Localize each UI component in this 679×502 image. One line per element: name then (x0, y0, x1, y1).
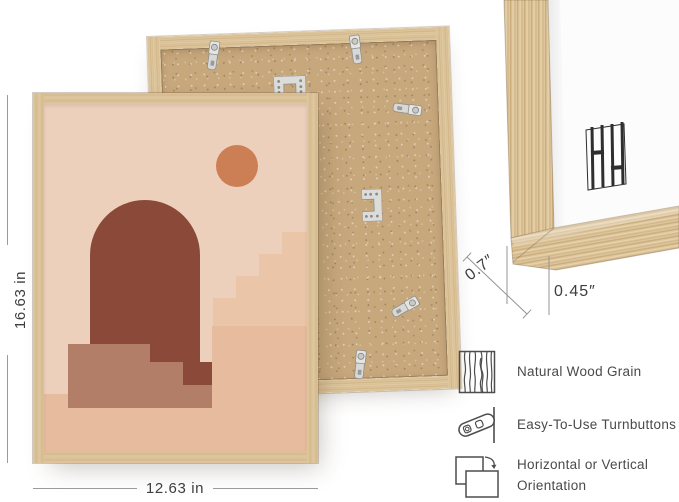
feature-label: Natural Wood Grain (517, 362, 641, 383)
product-image: 16.63 in 12.63 in (0, 0, 679, 502)
frame-rail-top (33, 93, 318, 104)
height-dimension-line (7, 355, 8, 463)
art-sun (216, 145, 258, 187)
width-dimension-line (213, 488, 318, 489)
canvas-front (548, 0, 679, 229)
frame-rail-left (33, 93, 44, 463)
face-dimension-label: 0.45″ (554, 283, 596, 300)
art-print (44, 104, 307, 452)
molding-side-rail (504, 0, 554, 238)
turnbutton-icon (452, 404, 502, 446)
frame-front-view (33, 93, 318, 463)
frame-rail-bottom (33, 452, 318, 463)
orientation-icon (452, 453, 502, 499)
feature-item: Natural Wood Grain (452, 350, 641, 394)
height-dimension-label: 16.63 in (12, 245, 28, 355)
feature-label: Horizontal or Vertical Orientation (517, 455, 677, 497)
wood-grain-icon (452, 350, 502, 394)
height-dimension-line (7, 95, 8, 245)
width-dimension-label: 12.63 in (137, 480, 213, 497)
frame-corner-closeup: 0.7″ 0.45″ (440, 0, 679, 335)
sawtooth-hanger-icon (361, 189, 382, 222)
width-dimension-line (33, 488, 137, 489)
feature-item: Horizontal or Vertical Orientation (452, 453, 677, 499)
frame-rail-right (307, 93, 318, 463)
feature-label: Easy-To-Use Turnbuttons (517, 415, 676, 436)
feature-item: Easy-To-Use Turnbuttons (452, 404, 676, 446)
